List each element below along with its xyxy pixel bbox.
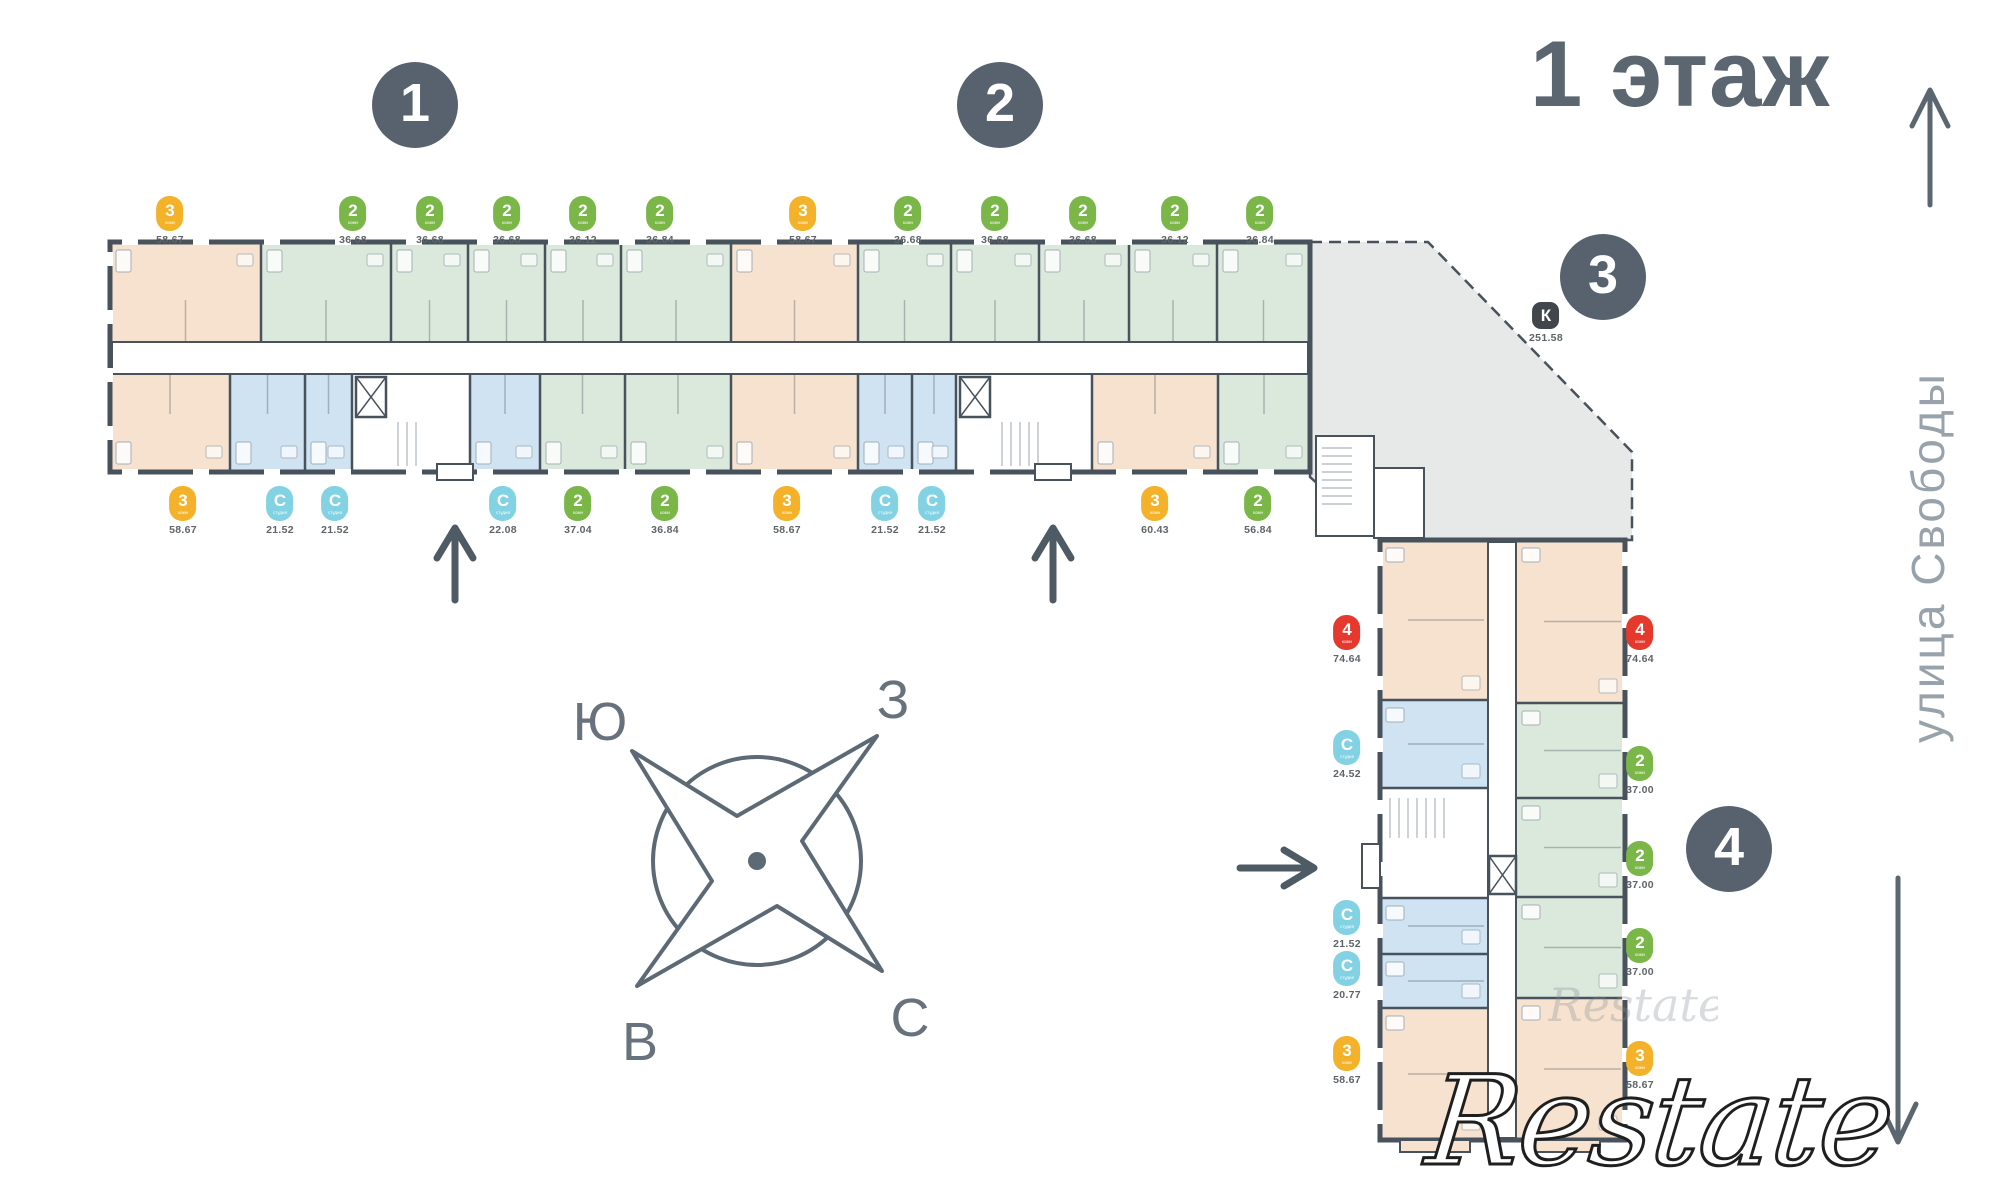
apartment-type-sub: комн <box>782 510 792 515</box>
apartment-badge[interactable]: Сстудия21.52 <box>918 486 946 536</box>
apartment-area: 21.52 <box>918 524 946 536</box>
apartment-type-sub: комн <box>1342 1060 1352 1065</box>
apartment-type-sub: комн <box>502 220 512 225</box>
apartment-type: 2 <box>573 492 582 509</box>
apartment-type: 3 <box>1150 492 1159 509</box>
apartment-type: С <box>497 492 509 509</box>
apartment-area: 36.12 <box>1161 234 1189 246</box>
apartment-type-sub: комн <box>1635 770 1645 775</box>
entrance-arrow-3 <box>1240 850 1314 886</box>
apartment-badge[interactable]: 2комн56.84 <box>1244 486 1272 536</box>
apartment-area: 21.52 <box>321 524 349 536</box>
apartment-type-sub: комн <box>903 220 913 225</box>
apartment-type: 2 <box>1078 202 1087 219</box>
apartment-badge[interactable]: 3комн58.67 <box>773 486 801 536</box>
apartment-area: 37.00 <box>1626 966 1654 978</box>
apartment-badge[interactable]: К251.58 <box>1529 302 1563 344</box>
apartment-type: 2 <box>903 202 912 219</box>
apartment-type-pill: 2комн <box>417 196 444 231</box>
apartment-type-pill: 3комн <box>774 486 801 521</box>
apartment-area: 251.58 <box>1529 332 1563 344</box>
entrance-4 <box>1362 844 1380 888</box>
apartment-type: 2 <box>578 202 587 219</box>
apartment-area: 21.52 <box>1333 938 1361 950</box>
apartment-badge[interactable]: 3комн58.67 <box>156 196 184 246</box>
apartment-type: 3 <box>1342 1042 1351 1059</box>
apartment-type-sub: студия <box>1340 924 1354 929</box>
apartment-type-sub: студия <box>1340 754 1354 759</box>
apartment-badge[interactable]: Сстудия21.52 <box>871 486 899 536</box>
apartment-type-sub: комн <box>1170 220 1180 225</box>
apartment-badge[interactable]: 3комн58.67 <box>1333 1036 1361 1086</box>
apartment-badge[interactable]: 2комн37.04 <box>564 486 592 536</box>
apartment-badge[interactable]: 3комн60.43 <box>1141 486 1169 536</box>
apartment-type-sub: комн <box>990 220 1000 225</box>
apartment-badge[interactable]: 2комн36.68 <box>339 196 367 246</box>
apartment-area: 58.67 <box>789 234 817 246</box>
apartment-badge[interactable]: 2комн36.68 <box>416 196 444 246</box>
apartment-type-pill: Сстудия <box>1334 900 1361 935</box>
apartment-type-pill: К <box>1532 302 1559 329</box>
apartment-type-pill: Сстудия <box>1334 730 1361 765</box>
apartment-type: 2 <box>655 202 664 219</box>
apartment-type-pill: 2комн <box>1627 928 1654 963</box>
apartment-type-pill: 3комн <box>1142 486 1169 521</box>
apartment-type: С <box>1341 957 1353 974</box>
compass-label-south: Ю <box>573 691 628 753</box>
apartment-area: 36.12 <box>569 234 597 246</box>
apartment-area: 58.67 <box>156 234 184 246</box>
section-marker-2: 2 <box>957 62 1043 148</box>
apartment-badge[interactable]: 2комн36.12 <box>569 196 597 246</box>
apartment-type-sub: комн <box>425 220 435 225</box>
apartment-area: 20.77 <box>1333 989 1361 1001</box>
apartment-area-cell <box>1380 788 1488 898</box>
apartment-area: 36.68 <box>894 234 922 246</box>
apartment-type-pill: 3комн <box>790 196 817 231</box>
apartment-type: С <box>1341 906 1353 923</box>
elevator-icon <box>356 377 386 417</box>
entrance-arrow-1 <box>437 528 473 600</box>
apartment-badge[interactable]: Сстудия22.08 <box>489 486 517 536</box>
apartment-type-sub: комн <box>165 220 175 225</box>
apartment-area: 58.67 <box>773 524 801 536</box>
compass-label-east: В <box>622 1011 658 1073</box>
apartment-badge[interactable]: 2комн37.00 <box>1626 746 1654 796</box>
apartment-type-pill: 3комн <box>1334 1036 1361 1071</box>
apartment-type: 2 <box>425 202 434 219</box>
apartment-type-pill: 2комн <box>1627 841 1654 876</box>
apartment-type-pill: 3комн <box>157 196 184 231</box>
compass-rose <box>632 736 882 986</box>
apartment-area: 36.68 <box>416 234 444 246</box>
apartment-area: 58.67 <box>169 524 197 536</box>
apartment-type: 2 <box>502 202 511 219</box>
apartment-type: 4 <box>1342 621 1351 638</box>
apartment-type-sub: студия <box>496 510 510 515</box>
apartment-badge[interactable]: 2комн36.68 <box>894 196 922 246</box>
apartment-type-sub: комн <box>348 220 358 225</box>
apartment-type: С <box>1341 736 1353 753</box>
apartment-type: 2 <box>1635 847 1644 864</box>
apartment-type: 2 <box>348 202 357 219</box>
apartment-area: 24.52 <box>1333 768 1361 780</box>
apartment-type: 3 <box>178 492 187 509</box>
compass-label-west: З <box>877 669 910 731</box>
apartment-type-sub: студия <box>328 510 342 515</box>
apartment-badge[interactable]: 4комн74.64 <box>1626 615 1654 665</box>
apartment-type: С <box>274 492 286 509</box>
apartment-type: 2 <box>1170 202 1179 219</box>
apartment-area: 36.84 <box>1246 234 1274 246</box>
apartment-type-sub: комн <box>1342 639 1352 644</box>
apartment-type-pill: Сстудия <box>872 486 899 521</box>
apartment-type-pill: 2комн <box>1627 746 1654 781</box>
apartment-type-pill: Сстудия <box>490 486 517 521</box>
apartment-type-sub: комн <box>178 510 188 515</box>
apartment-badge[interactable]: 2комн36.84 <box>651 486 679 536</box>
apartment-area: 74.64 <box>1333 653 1361 665</box>
apartment-type-sub: студия <box>273 510 287 515</box>
apartment-badge[interactable]: Сстудия21.52 <box>1333 900 1361 950</box>
apartment-area: 37.00 <box>1626 784 1654 796</box>
elevator-icon <box>1489 856 1516 894</box>
apartment-badge[interactable]: 2комн36.68 <box>981 196 1009 246</box>
apartment-type-pill: 4комн <box>1627 615 1654 650</box>
apartment-type-pill: 2комн <box>340 196 367 231</box>
apartment-type-pill: Сстудия <box>1334 951 1361 986</box>
apartment-type: 3 <box>165 202 174 219</box>
apartment-type-sub: комн <box>660 510 670 515</box>
apartment-area: 74.64 <box>1626 653 1654 665</box>
entrance-1 <box>437 464 473 480</box>
apartment-type: 2 <box>660 492 669 509</box>
apartment-type-pill: 4комн <box>1334 615 1361 650</box>
section-marker-4: 4 <box>1686 806 1772 892</box>
apartment-type-pill: 2комн <box>565 486 592 521</box>
apartment-type-pill: 2комн <box>570 196 597 231</box>
apartment-type-pill: 2комн <box>1070 196 1097 231</box>
apartment-type-pill: 2комн <box>1245 486 1272 521</box>
apartment-badge[interactable]: 2комн37.00 <box>1626 928 1654 978</box>
apartment-badge[interactable]: 2комн36.12 <box>1161 196 1189 246</box>
apartment-area: 36.68 <box>493 234 521 246</box>
apartment-badge[interactable]: 4комн74.64 <box>1333 615 1361 665</box>
section-marker-1: 1 <box>372 62 458 148</box>
apartment-type: 2 <box>1255 202 1264 219</box>
apartment-area: 21.52 <box>266 524 294 536</box>
apartment-type-sub: комн <box>655 220 665 225</box>
watermark-logo: Restate <box>1422 1062 1898 1182</box>
apartment-type: 2 <box>1253 492 1262 509</box>
page-title: 1 этаж <box>1350 20 1830 128</box>
apartment-type-sub: комн <box>573 510 583 515</box>
apartment-badge[interactable]: 3комн58.67 <box>789 196 817 246</box>
apartment-area: 56.84 <box>1244 524 1272 536</box>
apartment-badge[interactable]: Сстудия20.77 <box>1333 951 1361 1001</box>
apartment-badge[interactable]: Сстудия21.52 <box>321 486 349 536</box>
apartment-area: 36.84 <box>646 234 674 246</box>
apartment-type-pill: 2комн <box>494 196 521 231</box>
apartment-area: 60.43 <box>1141 524 1169 536</box>
apartment-type-pill: Сстудия <box>267 486 294 521</box>
apartment-type-sub: студия <box>878 510 892 515</box>
apartment-type: 3 <box>782 492 791 509</box>
entrance-arrow-2 <box>1035 528 1071 600</box>
apartment-type-sub: комн <box>1635 639 1645 644</box>
apartment-type-sub: студия <box>925 510 939 515</box>
apartment-badge[interactable]: Сстудия24.52 <box>1333 730 1361 780</box>
apartment-type: С <box>329 492 341 509</box>
apartment-type: 3 <box>798 202 807 219</box>
apartment-type-sub: комн <box>1078 220 1088 225</box>
apartment-area: 58.67 <box>1333 1074 1361 1086</box>
apartment-type: 2 <box>1635 752 1644 769</box>
apartment-type-sub: комн <box>1255 220 1265 225</box>
apartment-area: 36.68 <box>1069 234 1097 246</box>
apartment-area: 21.52 <box>871 524 899 536</box>
apartment-type-sub: комн <box>1635 865 1645 870</box>
apartment-badge[interactable]: 2комн36.68 <box>493 196 521 246</box>
apartment-badge[interactable]: 2комн37.00 <box>1626 841 1654 891</box>
apartment-badge[interactable]: 2комн36.68 <box>1069 196 1097 246</box>
apartment-area: 36.68 <box>981 234 1009 246</box>
apartment-type-pill: 3комн <box>170 486 197 521</box>
apartment-type: 2 <box>990 202 999 219</box>
apartment-area: 37.00 <box>1626 879 1654 891</box>
apartment-type-pill: Сстудия <box>322 486 349 521</box>
apartment-type-pill: 2комн <box>895 196 922 231</box>
street-name-label: улица Свободы <box>1901 255 1955 860</box>
apartment-badge[interactable]: 2комн36.84 <box>1246 196 1274 246</box>
apartment-area: 22.08 <box>489 524 517 536</box>
apartment-type-sub: студия <box>1340 975 1354 980</box>
apartment-type-pill: Сстудия <box>919 486 946 521</box>
apartment-type-sub: комн <box>798 220 808 225</box>
apartment-type: С <box>926 492 938 509</box>
apartment-type: К <box>1541 307 1551 324</box>
apartment-type-sub: комн <box>1150 510 1160 515</box>
watermark-fragment: Restate <box>1548 978 1718 1032</box>
section-marker-3: 3 <box>1560 234 1646 320</box>
apartment-type: 4 <box>1635 621 1644 638</box>
apartment-type-pill: 2комн <box>1247 196 1274 231</box>
apartment-badge[interactable]: 3комн58.67 <box>169 486 197 536</box>
apartment-type-pill: 2комн <box>982 196 1009 231</box>
apartment-type-pill: 2комн <box>647 196 674 231</box>
elevator-icon <box>960 377 990 417</box>
street-arrow-up <box>1912 90 1948 205</box>
apartment-type: 2 <box>1635 934 1644 951</box>
entrance-2 <box>1035 464 1071 480</box>
floor-plan-page: 1 этаж улица Свободы 1 2 3 4 Ю З В С 3ко… <box>0 0 2000 1191</box>
apartment-type-sub: комн <box>1635 952 1645 957</box>
apartment-type: С <box>879 492 891 509</box>
apartment-type-pill: 2комн <box>1162 196 1189 231</box>
apartment-area: 36.68 <box>339 234 367 246</box>
apartment-badge[interactable]: Сстудия21.52 <box>266 486 294 536</box>
apartment-badge[interactable]: 2комн36.84 <box>646 196 674 246</box>
apartment-type-sub: комн <box>578 220 588 225</box>
apartment-type-pill: 2комн <box>652 486 679 521</box>
compass-label-north: С <box>891 987 930 1049</box>
apartment-type-sub: комн <box>1253 510 1263 515</box>
apartment-area: 36.84 <box>651 524 679 536</box>
apartment-area: 37.04 <box>564 524 592 536</box>
